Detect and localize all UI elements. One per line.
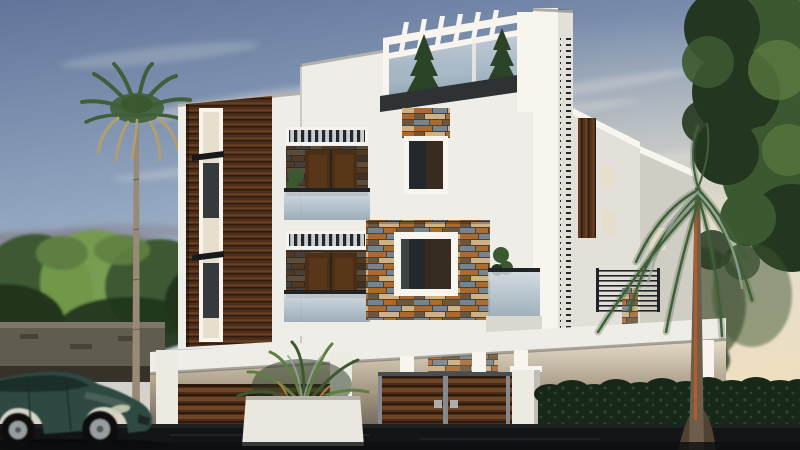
planter-box xyxy=(242,396,364,446)
main-double-gate xyxy=(378,372,512,428)
side-window-upper xyxy=(602,166,614,186)
gate-handle-left xyxy=(434,400,442,408)
render-image: 3D render of a modern three-storey white… xyxy=(0,0,800,450)
compound-wall xyxy=(0,322,165,382)
vent-louver-2f xyxy=(289,130,365,142)
stone-band-2f xyxy=(402,108,450,194)
terrace-column xyxy=(517,12,533,112)
glass-railing-2f xyxy=(284,192,370,222)
balcony-1f xyxy=(282,231,372,336)
wood-slat-panel xyxy=(186,96,272,347)
side-window-lower xyxy=(602,210,616,234)
glass-railing-1f xyxy=(284,294,370,324)
stone-feature-wall xyxy=(366,220,490,320)
foreground-vignette xyxy=(0,442,800,450)
gate-handle-right xyxy=(450,400,458,408)
perforated-screen xyxy=(560,36,571,338)
car-front-wheel xyxy=(82,411,118,447)
side-wood-fin xyxy=(578,118,596,238)
gate-post-left xyxy=(156,350,178,430)
villa-render-canvas xyxy=(0,0,800,450)
vent-louver-1f xyxy=(289,234,365,246)
palm-trunk-stripe xyxy=(694,205,697,420)
balcony-2f xyxy=(282,127,372,233)
car-rear-wheel xyxy=(1,413,35,447)
